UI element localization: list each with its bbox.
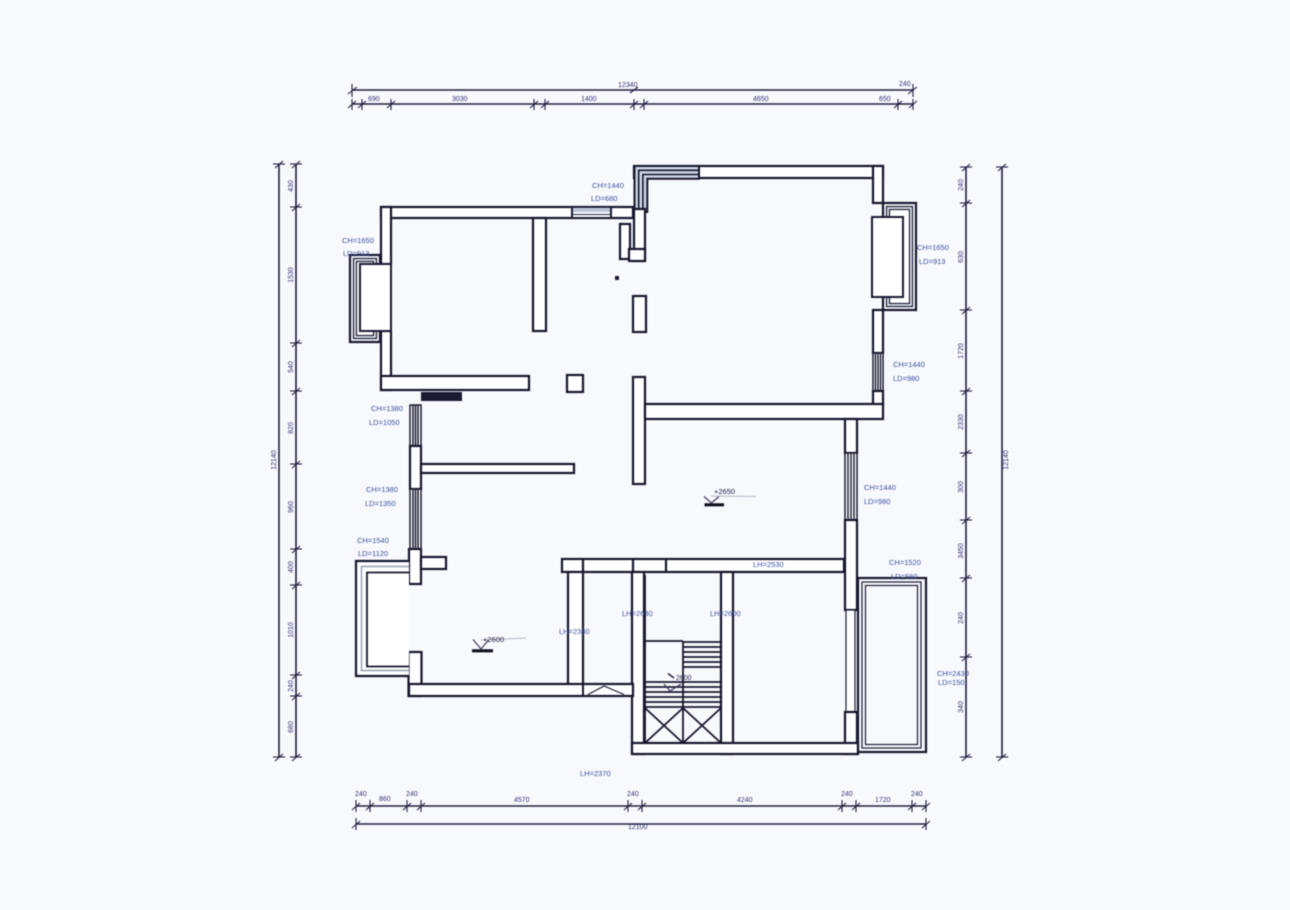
svg-text:540: 540 [288, 361, 295, 373]
svg-text:4650: 4650 [753, 96, 769, 103]
svg-text:1400: 1400 [581, 96, 597, 103]
svg-text:LD=680: LD=680 [591, 194, 617, 203]
svg-text:240: 240 [355, 791, 367, 798]
svg-text:3450: 3450 [958, 543, 965, 559]
svg-text:12140: 12140 [1003, 450, 1010, 470]
svg-text:LD=913: LD=913 [919, 257, 945, 266]
svg-text:LD=560: LD=560 [891, 572, 917, 581]
svg-text:LH=2600: LH=2600 [710, 609, 741, 618]
svg-text:LH=2380: LH=2380 [559, 627, 590, 636]
svg-text:LD=150: LD=150 [938, 678, 964, 687]
svg-text:400: 400 [288, 561, 295, 573]
svg-text:2330: 2330 [958, 414, 965, 430]
svg-text:860: 860 [379, 796, 391, 803]
svg-text:2600: 2600 [676, 675, 692, 682]
svg-text:CH=1650: CH=1650 [917, 243, 949, 252]
svg-text:240: 240 [911, 791, 923, 798]
svg-text:680: 680 [288, 721, 295, 733]
svg-text:240: 240 [958, 612, 965, 624]
svg-text:820: 820 [288, 422, 295, 434]
svg-text:1720: 1720 [875, 797, 891, 804]
svg-text:LD=1050: LD=1050 [369, 418, 400, 427]
svg-text:CH=2430: CH=2430 [937, 669, 969, 678]
svg-text:960: 960 [288, 501, 295, 513]
svg-text:12140: 12140 [271, 450, 278, 470]
svg-text:240: 240 [899, 81, 911, 88]
svg-text:12100: 12100 [628, 824, 648, 831]
svg-text:+2650: +2650 [714, 487, 735, 496]
svg-text:650: 650 [879, 96, 891, 103]
svg-text:240: 240 [627, 791, 639, 798]
svg-text:LH=2630: LH=2630 [622, 609, 653, 618]
svg-text:12340: 12340 [618, 82, 638, 89]
svg-text:1010: 1010 [288, 622, 295, 638]
svg-text:4570: 4570 [514, 797, 530, 804]
svg-text:CH=1440: CH=1440 [864, 483, 896, 492]
svg-text:430: 430 [288, 180, 295, 192]
svg-text:4240: 4240 [737, 797, 753, 804]
svg-text:240: 240 [958, 179, 965, 191]
svg-text:LH=2370: LH=2370 [580, 769, 611, 778]
svg-text:240: 240 [406, 791, 418, 798]
svg-text:LD=913: LD=913 [343, 249, 369, 258]
svg-text:+2600: +2600 [483, 635, 504, 644]
svg-text:CH=1380: CH=1380 [371, 404, 403, 413]
svg-text:1530: 1530 [288, 267, 295, 283]
svg-text:LD=1120: LD=1120 [358, 549, 388, 558]
svg-text:CH=1440: CH=1440 [893, 360, 925, 369]
svg-text:630: 630 [958, 251, 965, 263]
svg-text:LD=980: LD=980 [893, 374, 919, 383]
svg-text:690: 690 [368, 96, 380, 103]
svg-text:LD=1350: LD=1350 [365, 499, 396, 508]
svg-text:1720: 1720 [958, 343, 965, 359]
svg-text:LH=2530: LH=2530 [753, 560, 784, 569]
svg-text:3030: 3030 [452, 96, 468, 103]
svg-text:CH=1650: CH=1650 [342, 236, 374, 245]
svg-text:CH=1380: CH=1380 [366, 485, 398, 494]
svg-text:CH=1520: CH=1520 [889, 558, 921, 567]
svg-text:240: 240 [288, 680, 295, 692]
svg-text:300: 300 [958, 481, 965, 493]
svg-text:CH=1540: CH=1540 [357, 536, 389, 545]
svg-text:240: 240 [841, 791, 853, 798]
svg-text:CH=1440: CH=1440 [592, 181, 624, 190]
svg-text:340: 340 [958, 701, 965, 713]
svg-text:LD=980: LD=980 [864, 497, 890, 506]
